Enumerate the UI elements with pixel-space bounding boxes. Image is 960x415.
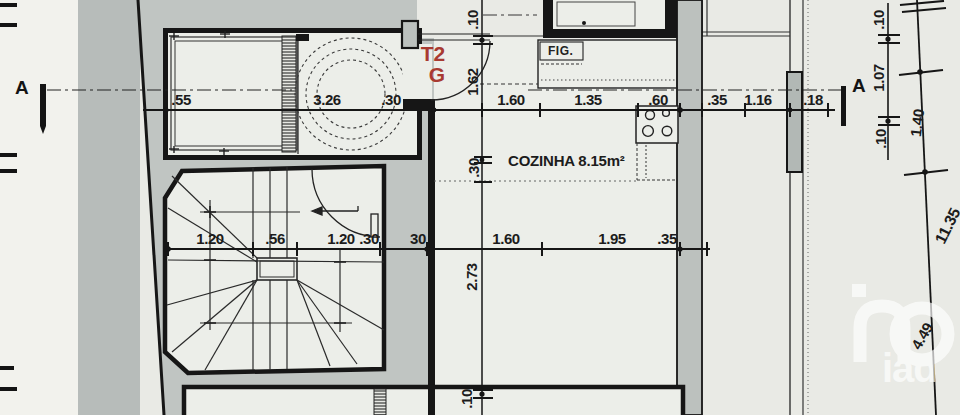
dim-label: 2.73 <box>464 263 479 291</box>
stove <box>636 106 678 143</box>
left-margin-strip <box>0 0 78 415</box>
dim-label: 3.26 <box>313 92 341 107</box>
dim-label: .10 <box>871 10 886 30</box>
bottom-room <box>184 387 683 415</box>
dim-label: .18 <box>803 92 823 107</box>
dim-label: .60 <box>648 92 668 107</box>
neighbor-wall-band <box>78 0 140 415</box>
vent-hatch <box>374 389 386 415</box>
section-marker-left: A <box>15 78 29 97</box>
dim-label: .10 <box>459 389 474 409</box>
dim-label: 1.07 <box>871 64 886 92</box>
dim-label: .30 <box>359 231 379 246</box>
window-pillar <box>787 72 802 172</box>
dim-label: 1.95 <box>598 231 626 246</box>
stair-room <box>165 166 384 373</box>
dim-label: .10 <box>465 10 480 30</box>
top-center-room <box>543 0 677 38</box>
fridge-label: FIG. <box>548 45 573 57</box>
dim-label: 30 <box>410 231 426 246</box>
dim-label: .30 <box>466 158 481 178</box>
floor-plan-drawing <box>0 0 960 415</box>
floor-plan-page: .55 3.26 .30 1.60 1.35 .60 .35 1.16 .18 … <box>0 0 960 415</box>
unit-type-label: T2 <box>421 44 446 64</box>
dim-label: 1.62 <box>465 68 480 96</box>
kitchen-label: COZINHA 8.15m² <box>508 153 625 168</box>
dim-label: .30 <box>381 92 401 107</box>
dim-label: 1.20 <box>327 231 355 246</box>
dim-label: 1.60 <box>492 231 520 246</box>
dim-label: .35 <box>707 92 727 107</box>
dim-label: .10 <box>873 129 888 149</box>
west-wall <box>428 99 435 391</box>
dim-label: .35 <box>657 231 677 246</box>
ladder-hatch <box>282 36 296 152</box>
dim-label: 1.35 <box>574 92 602 107</box>
dim-label: .56 <box>265 231 285 246</box>
dim-label: 1.40 <box>908 108 926 137</box>
dim-label: 1.20 <box>196 231 224 246</box>
dim-label: 1.60 <box>497 92 525 107</box>
east-wall <box>677 0 702 415</box>
section-marker-right: A <box>852 76 866 95</box>
dim-label: 1.16 <box>744 92 772 107</box>
unit-garage-label: G <box>429 65 445 85</box>
dim-label: .55 <box>171 92 191 107</box>
